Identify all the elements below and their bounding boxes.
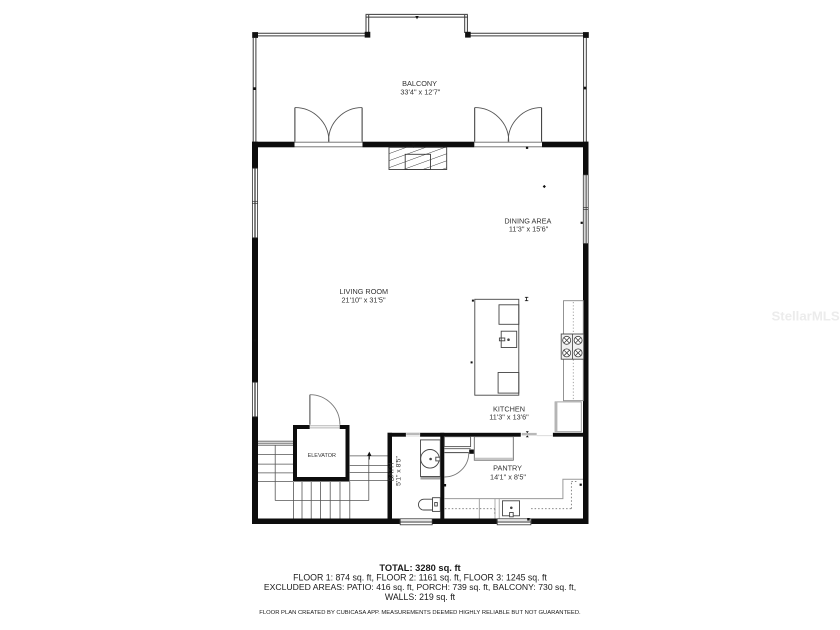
svg-text:WALLS: 219 sq. ft: WALLS: 219 sq. ft: [385, 592, 456, 602]
svg-text:21'10" x 31'5": 21'10" x 31'5": [341, 296, 385, 305]
svg-text:14'1" x 8'5": 14'1" x 8'5": [490, 472, 526, 481]
svg-text:ELEVATOR: ELEVATOR: [308, 453, 336, 459]
svg-text:5'1" x 8'5": 5'1" x 8'5": [396, 456, 403, 486]
svg-text:33'4" x 12'7": 33'4" x 12'7": [400, 88, 440, 97]
svg-text:EXCLUDED AREAS: PATIO: 416 sq.: EXCLUDED AREAS: PATIO: 416 sq. ft, PORCH…: [264, 582, 576, 592]
svg-text:FLOOR PLAN CREATED BY CUBICASA: FLOOR PLAN CREATED BY CUBICASA APP. MEAS…: [259, 610, 581, 616]
svg-text:TOTAL: 3280 sq. ft: TOTAL: 3280 sq. ft: [379, 563, 460, 573]
svg-text:11'3" x 15'6": 11'3" x 15'6": [509, 225, 549, 234]
svg-text:BATH: BATH: [387, 463, 396, 482]
svg-text:StellarMLS: StellarMLS: [772, 309, 840, 324]
svg-text:11'3" x 13'6": 11'3" x 13'6": [489, 412, 529, 421]
svg-text:FLOOR 1: 874 sq. ft, FLOOR 2:: FLOOR 1: 874 sq. ft, FLOOR 2: 1161 sq. f…: [293, 572, 547, 582]
